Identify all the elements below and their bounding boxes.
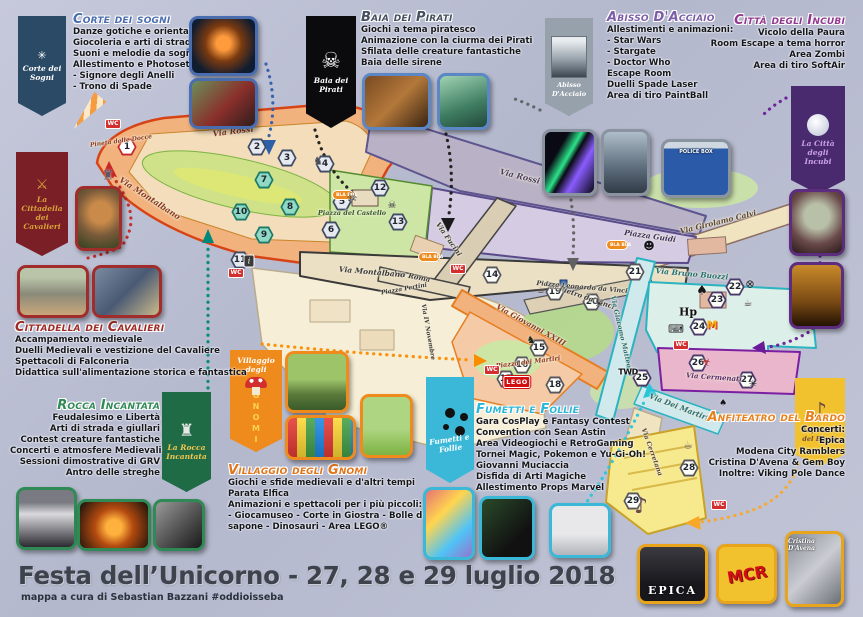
text-line: Giovanni Muciaccia [476,461,646,472]
text-line: Concerti: [690,425,845,436]
banner-label: La Cittadella dei Cavalieri [16,195,68,231]
section-corte-dei-sogni: Corte dei sogni Danze gotiche e oriental… [73,13,198,93]
text-line: Cristina D'Avena & Gem Boy [690,458,845,469]
text-line: Spettacoli di Falconeria [15,357,247,368]
section-cittadella-dei-cavalieri: Cittadella dei Cavalieri Accampamento me… [15,321,247,379]
text-line: Allestimento Props Marvel [476,483,646,494]
moon-icon [807,114,829,136]
text-line: Contest creature fantastiche [10,435,160,446]
section-title: Corte dei sogni [73,13,198,27]
text-line: Vicolo della Paura [688,28,845,39]
text-line: Area di tiro SoftAir [688,61,845,72]
photo-knight-duel [92,265,162,318]
text-line: - Giocamuseo - Corte in Giostra - Bolle … [228,511,425,522]
text-line: Arti di strada e giullari [10,424,160,435]
text-line: Danze gotiche e orientali [73,27,198,38]
poster-title: Festa dell’Unicorno - 27, 28 e 29 luglio… [18,561,615,590]
photo-dinosaur [285,351,349,413]
text-line: Area Zombi [688,50,845,61]
photo-cristina-davena: Cristina D'Avena [785,531,844,607]
photo-harry-potter [479,496,535,560]
poster-credit: mappa a cura di Sebastian Bazzani #oddio… [21,592,283,603]
photo-zombie [789,189,845,256]
photo-medieval-camp [17,265,89,318]
photo-laser-duel [542,129,597,196]
photo-elf-costumes [189,78,258,129]
banner-cittadella-dei-cavalieri: ⚔ La Cittadella dei Cavalieri [16,152,68,256]
text-line: Area di tiro PaintBall [607,91,733,102]
banner-label: La Rocca Incantata [162,443,211,461]
banner-fumetti-e-follie: Fumetti e Follie [426,377,474,483]
festival-map-poster: 1234567891011121314151617181920212223242… [0,0,863,617]
section-title: Rocca Incantata [10,399,160,413]
fairy-icon: ✳ [37,50,46,61]
section-citta-degli-incubi: Città degli Incubi Vicolo della PauraRoo… [688,14,845,72]
text-line: Tornei Magic, Pokemon e Yu-Gi-Oh! [476,450,646,461]
text-line: Inoltre: Viking Pole Dance [690,469,845,480]
section-lines: Vicolo della PauraRoom Escape a tema hor… [688,28,845,72]
mushroom-icon [245,377,267,388]
text-line: Allestimento e Photoset: [73,60,198,71]
epica-logo: EPICA [648,584,697,597]
photo-fire-dancers [77,499,151,551]
photo-cosplay-group [423,487,475,560]
mcr-logo: MCR [725,561,768,587]
section-title: Cittadella dei Cavalieri [15,321,247,335]
text-line: Parata Elfica [228,489,425,500]
text-line: Giochi e sfide medievali e d'altri tempi [228,478,425,489]
cristina-poster-title: Cristina D'Avena [788,538,841,552]
text-line: Suoni e melodie da sogno [73,49,198,60]
section-lines: Concerti:EpicaModena City RamblersCristi… [690,425,845,480]
section-rocca-incantata: Rocca Incantata Feudalesimo e LibertàArt… [10,399,160,479]
text-line: Sfilata delle creature fantastiche [361,47,533,58]
photo-witch-performer [16,487,77,550]
section-anfiteatro-del-bardo: Anfiteatro del Bardo Concerti:EpicaModen… [690,411,845,480]
banner-label: Corte dei Sogni [18,64,66,82]
section-title: Baia dei Pirati [361,11,533,25]
text-line: Room Escape a tema horror [688,39,845,50]
text-line: - Trono di Spade [73,82,198,93]
text-line: Modena City Ramblers [690,447,845,458]
text-line: Epica [690,436,845,447]
text-line: sapone - Dinosauri - Area LEGO® [228,522,425,533]
photo-kids-playing [360,394,413,458]
banner-corte-dei-sogni: ✳ Corte dei Sogni [18,16,66,116]
banner-label: Fumetti e Follie [425,431,475,456]
text-line: Gara CosPlay e Fantasy Contest [476,417,646,428]
castle-tower-icon: ♜ [179,423,194,440]
text-line: Animazioni e spettacoli per i più piccol… [228,500,425,511]
section-fumetti-e-follie: Fumetti e Follie Gara CosPlay e Fantasy … [476,403,646,494]
text-line: Animazione con la ciurma dei Pirati [361,36,533,47]
banner-baia-dei-pirati: ☠ Baia dei Pirati [306,16,356,128]
photo-police-box: POLICE BOX [661,139,731,198]
photo-horror-corridor [789,262,844,329]
section-title: Villaggio degli Gnomi [228,464,425,478]
robot-head-icon [551,36,587,78]
text-line: Duelli Medievali e vestizione del Cavali… [15,346,247,357]
banner-rocca-incantata: ♜ La Rocca Incantata [162,392,211,492]
section-title: Fumetti e Follie [476,403,646,417]
text-line: Area Videogiochi e RetroGaming [476,439,646,450]
banner-label: Baia dei Pirati [306,76,356,94]
police-box-sign: POLICE BOX [679,149,713,155]
section-title: Città degli Incubi [688,14,845,28]
section-title: Anfiteatro del Bardo [690,411,845,425]
photo-falconry [75,186,122,251]
banner-abisso-dacciaio: Abisso D'Acciaio [545,18,593,116]
photo-sean-astin [549,503,611,558]
photo-mcr-logo: MCR [716,544,777,604]
section-lines: Feudalesimo e LibertàArti di strada e gi… [10,413,160,479]
banner-label: Abisso D'Acciaio [545,81,593,99]
section-lines: Gara CosPlay e Fantasy ContestConvention… [476,417,646,494]
photo-fire-show [189,16,258,76]
photo-medieval-drummer [153,499,205,551]
text-line: Duelli Spade Laser [607,80,733,91]
photo-mermaid [437,73,490,130]
section-baia-dei-pirati: Baia dei Pirati Giochi a tema piratescoA… [361,11,533,69]
text-line: Didattica sull'alimentazione storica e f… [15,368,247,379]
section-villaggio-degli-gnomi: Villaggio degli Gnomi Giochi e sfide med… [228,464,425,533]
text-line: Disfida di Arti Magiche [476,472,646,483]
photo-lego-bricks [285,415,356,460]
section-lines: Accampamento medievaleDuelli Medievali e… [15,335,247,379]
section-lines: Giochi a tema piratescoAnimazione con la… [361,25,533,69]
section-lines: Giochi e sfide medievali e d'altri tempi… [228,478,425,533]
text-line: - Signore degli Anelli [73,71,198,82]
text-line: Giocoleria e arti di strada [73,38,198,49]
banner-label: La Città degli Incubi [791,139,845,166]
section-lines: Danze gotiche e orientaliGiocoleria e ar… [73,27,198,93]
text-line: Baia delle sirene [361,58,533,69]
pirate-skull-icon: ☠ [321,51,341,73]
soot-sprites-icon [445,408,455,418]
text-line: Feudalesimo e Libertà [10,413,160,424]
photo-pirate-crew [362,73,431,130]
text-line: Accampamento medievale [15,335,247,346]
text-line: Concerti e atmosfere Medievali [10,446,160,457]
text-line: Sessioni dimostrative di GRV [10,457,160,468]
text-line: Giochi a tema piratesco [361,25,533,36]
text-line: Antro delle streghe [10,468,160,479]
photo-robot-statue [601,129,650,196]
photo-epica-band: EPICA [637,544,708,604]
text-line: Convention con Sean Astin [476,428,646,439]
banner-citta-degli-incubi: La Città degli Incubi [791,86,845,194]
banner-label-vertical: GNOMI [252,391,261,446]
arena-icon: ⚔ [36,178,49,192]
